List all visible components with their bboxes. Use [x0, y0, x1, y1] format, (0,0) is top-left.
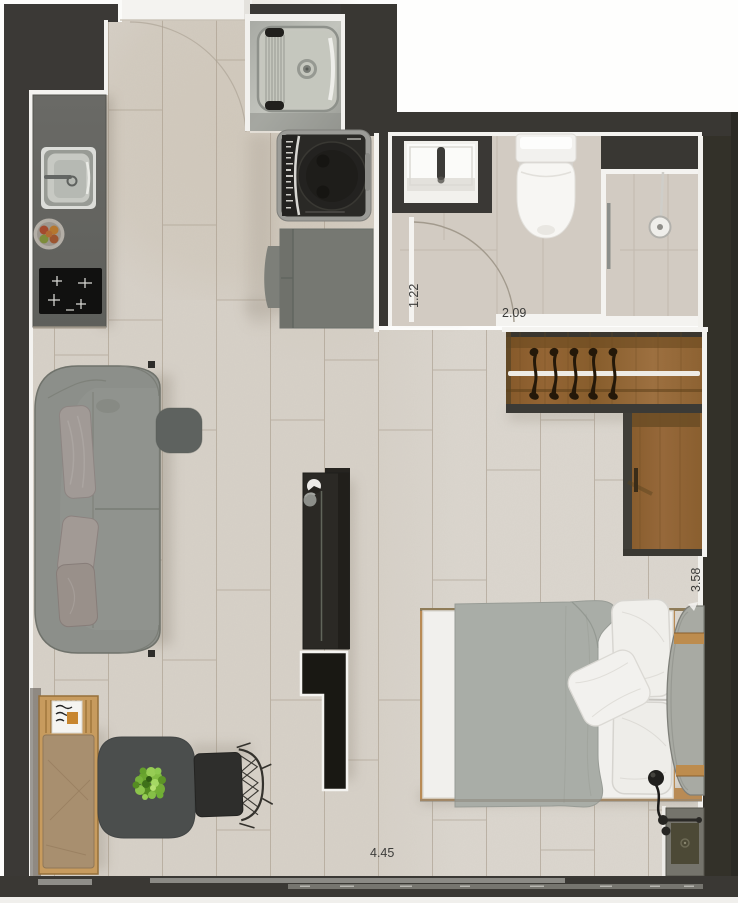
svg-text:4.45: 4.45 — [370, 846, 394, 860]
svg-text:3.58: 3.58 — [689, 568, 703, 592]
svg-text:1.22: 1.22 — [407, 284, 421, 308]
svg-text:2.09: 2.09 — [502, 306, 526, 320]
